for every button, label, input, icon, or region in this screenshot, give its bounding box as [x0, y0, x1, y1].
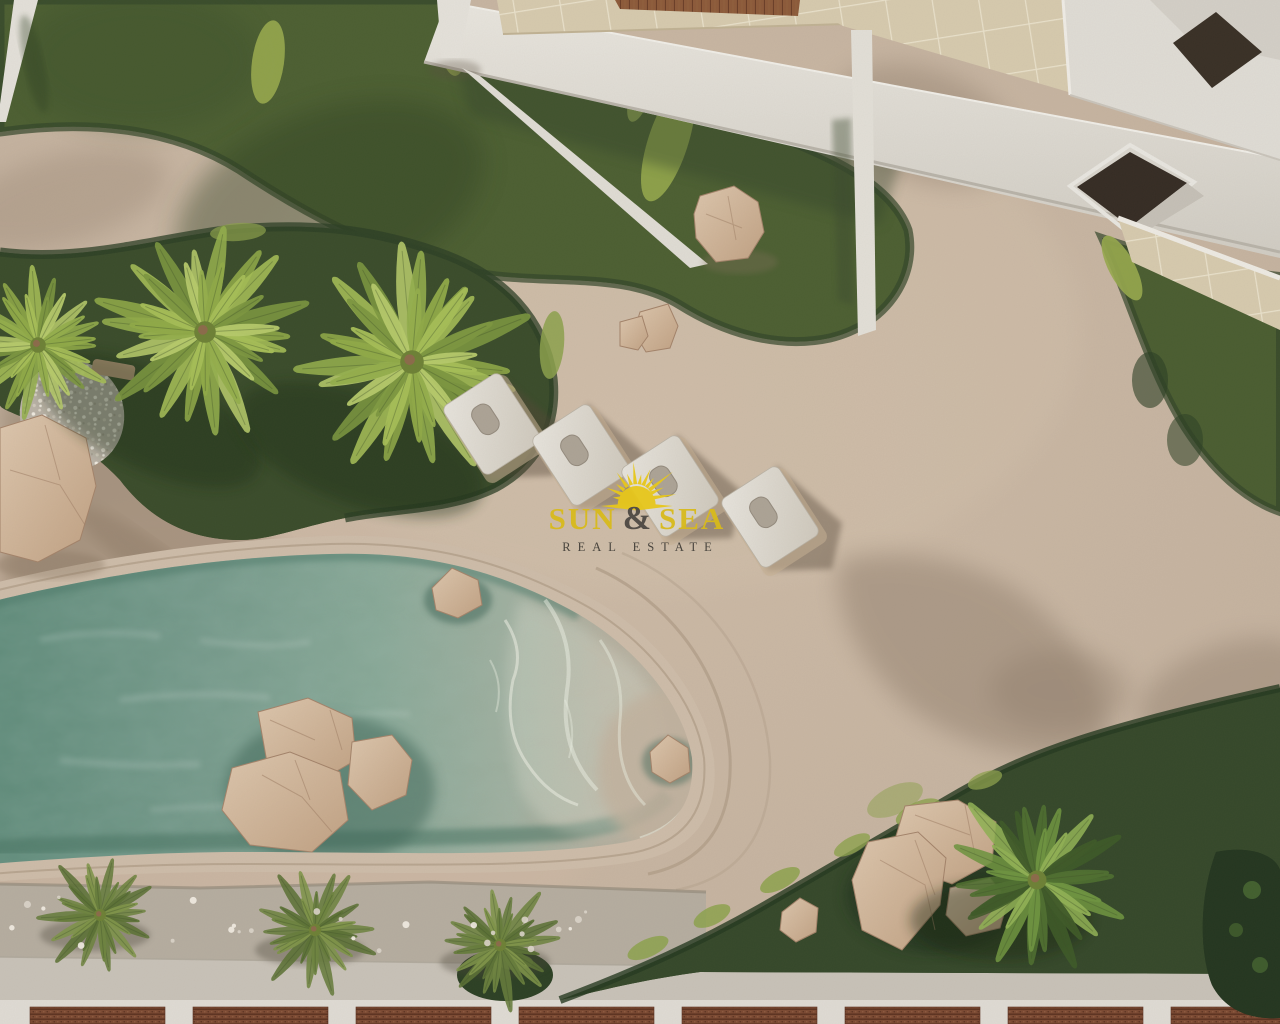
aerial-render: SUN&SEA REAL ESTATE — [0, 0, 1280, 1024]
scene-canvas — [0, 0, 1280, 1024]
film-grain — [0, 0, 1280, 1024]
